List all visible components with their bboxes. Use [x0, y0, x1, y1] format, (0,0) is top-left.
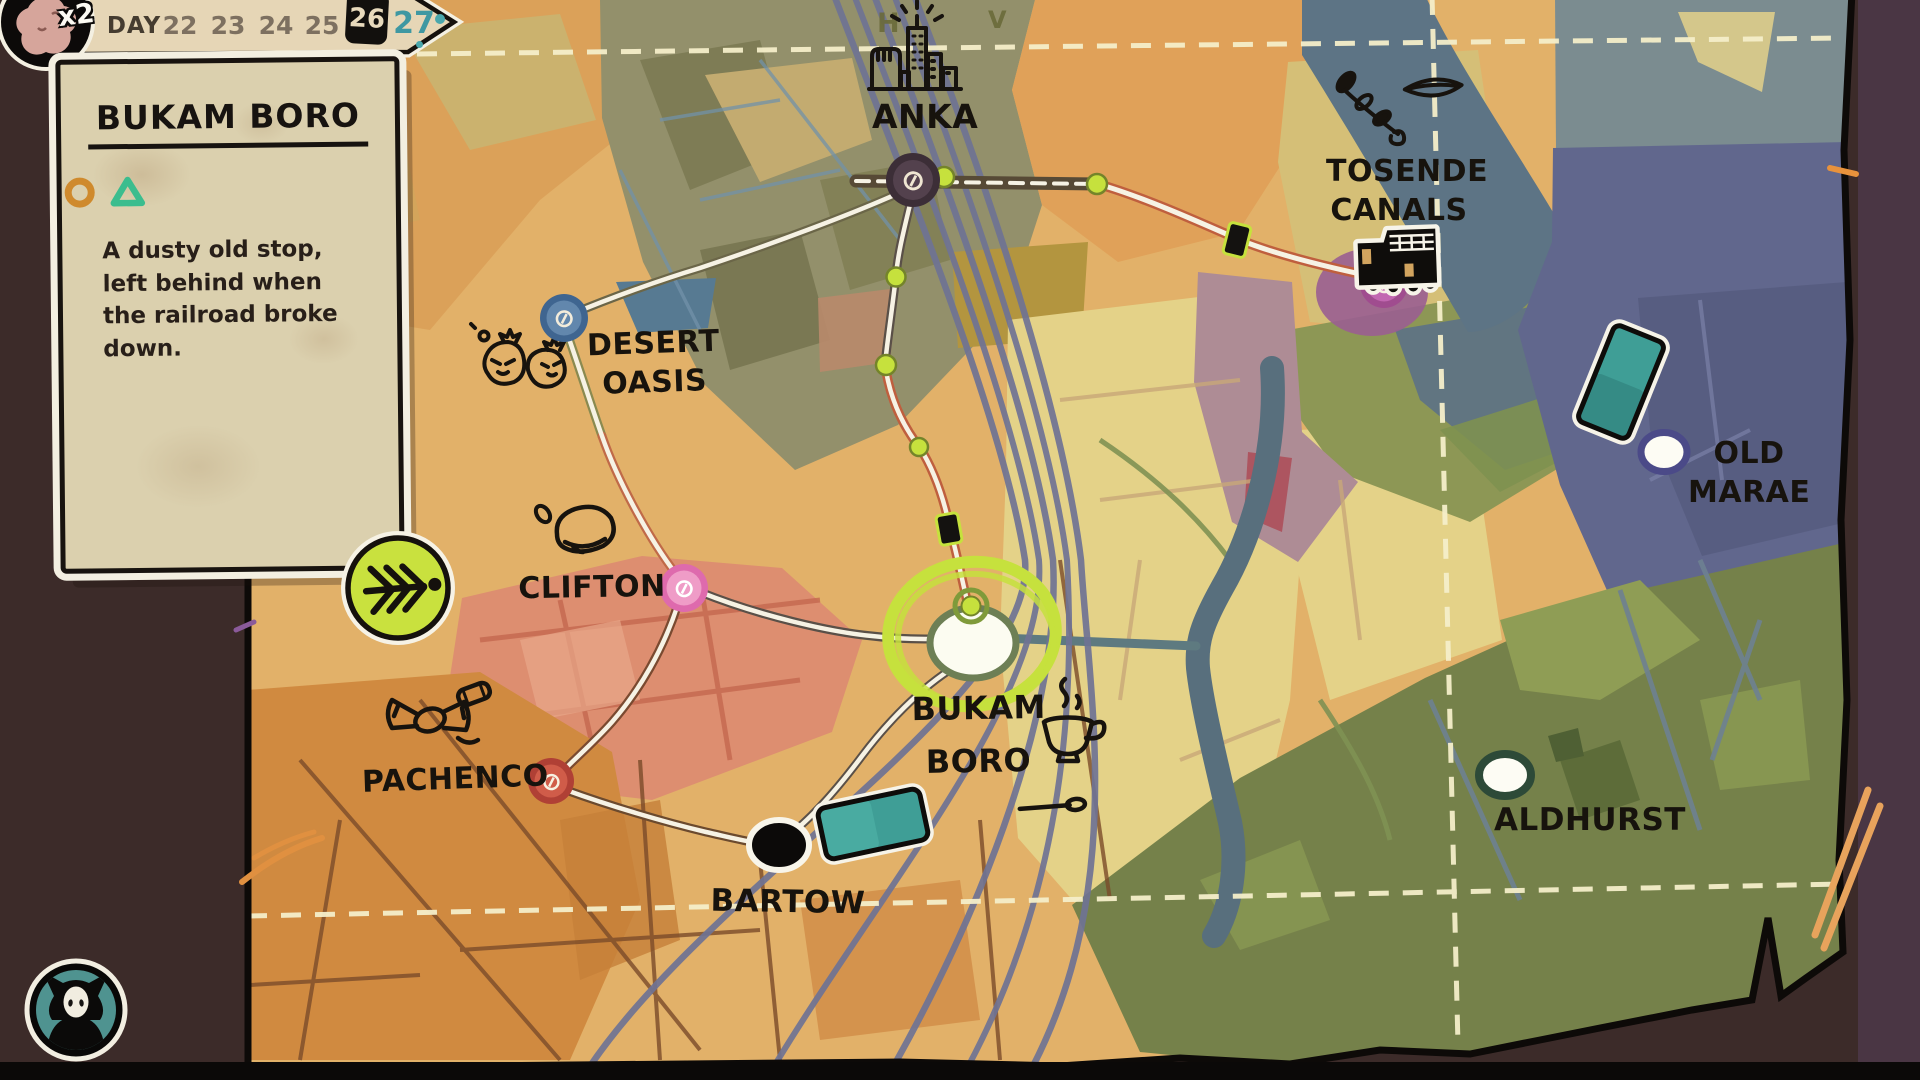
node-aldhurst[interactable] [1479, 754, 1531, 796]
route-marker[interactable] [936, 512, 963, 545]
label-aldhurst: ALDHURST [1494, 800, 1664, 840]
player-pin-icon [962, 597, 981, 616]
label-pachenco: PACHENCO [361, 757, 527, 802]
label-clifton: CLIFTON [517, 567, 668, 609]
day-27-current: 27 [390, 4, 438, 44]
day-24: 24 [254, 6, 298, 46]
day-23: 23 [206, 6, 250, 46]
info-card-description: A dusty old stop, left behind when the r… [102, 233, 359, 366]
travel-button[interactable] [333, 523, 463, 653]
day-26-boxed: 26 [345, 0, 390, 45]
companion-avatar[interactable] [20, 954, 132, 1066]
screen-bottom-bar [0, 1062, 1920, 1080]
map-paper: H V [240, 0, 1860, 1080]
day-22: 22 [158, 6, 202, 46]
label-tosende-canals: TOSENDE CANALS [1326, 152, 1472, 230]
teal-dot [416, 41, 423, 48]
label-bukam-boro: BUKAM BORO [911, 681, 1045, 789]
teal-dot [435, 14, 445, 24]
cat-icon [43, 972, 109, 1052]
location-info-card: BUKAM BORO A dusty old stop, left behind… [55, 56, 404, 574]
node-bukam-boro [930, 608, 1016, 678]
info-card-title: BUKAM BORO [88, 96, 369, 150]
day-counter: DAY 22 23 24 25 26 27 [70, 0, 462, 58]
node-old-marae[interactable] [1641, 433, 1687, 472]
label-anka: ANKA [872, 96, 972, 139]
game-screen: H V [0, 0, 1920, 1080]
day-25: 25 [300, 6, 344, 46]
truck-icon [1357, 229, 1437, 296]
node-anka[interactable]: ⊘ [886, 153, 940, 207]
location-tags [62, 170, 396, 211]
node-desert-oasis[interactable]: ⊘ [540, 294, 588, 342]
map-letter-v: V [988, 6, 1007, 34]
multiplier-badge: x2 [56, 0, 96, 33]
label-old-marae: OLD MARAE [1688, 434, 1810, 512]
label-bartow: BARTOW [708, 881, 869, 924]
node-bartow[interactable] [749, 820, 809, 870]
map-letter-h: H [877, 8, 900, 39]
orange-circle-tag-icon [68, 181, 91, 204]
teal-triangle-tag-icon [114, 180, 142, 203]
label-desert-oasis: DESERT OASIS [583, 322, 726, 405]
